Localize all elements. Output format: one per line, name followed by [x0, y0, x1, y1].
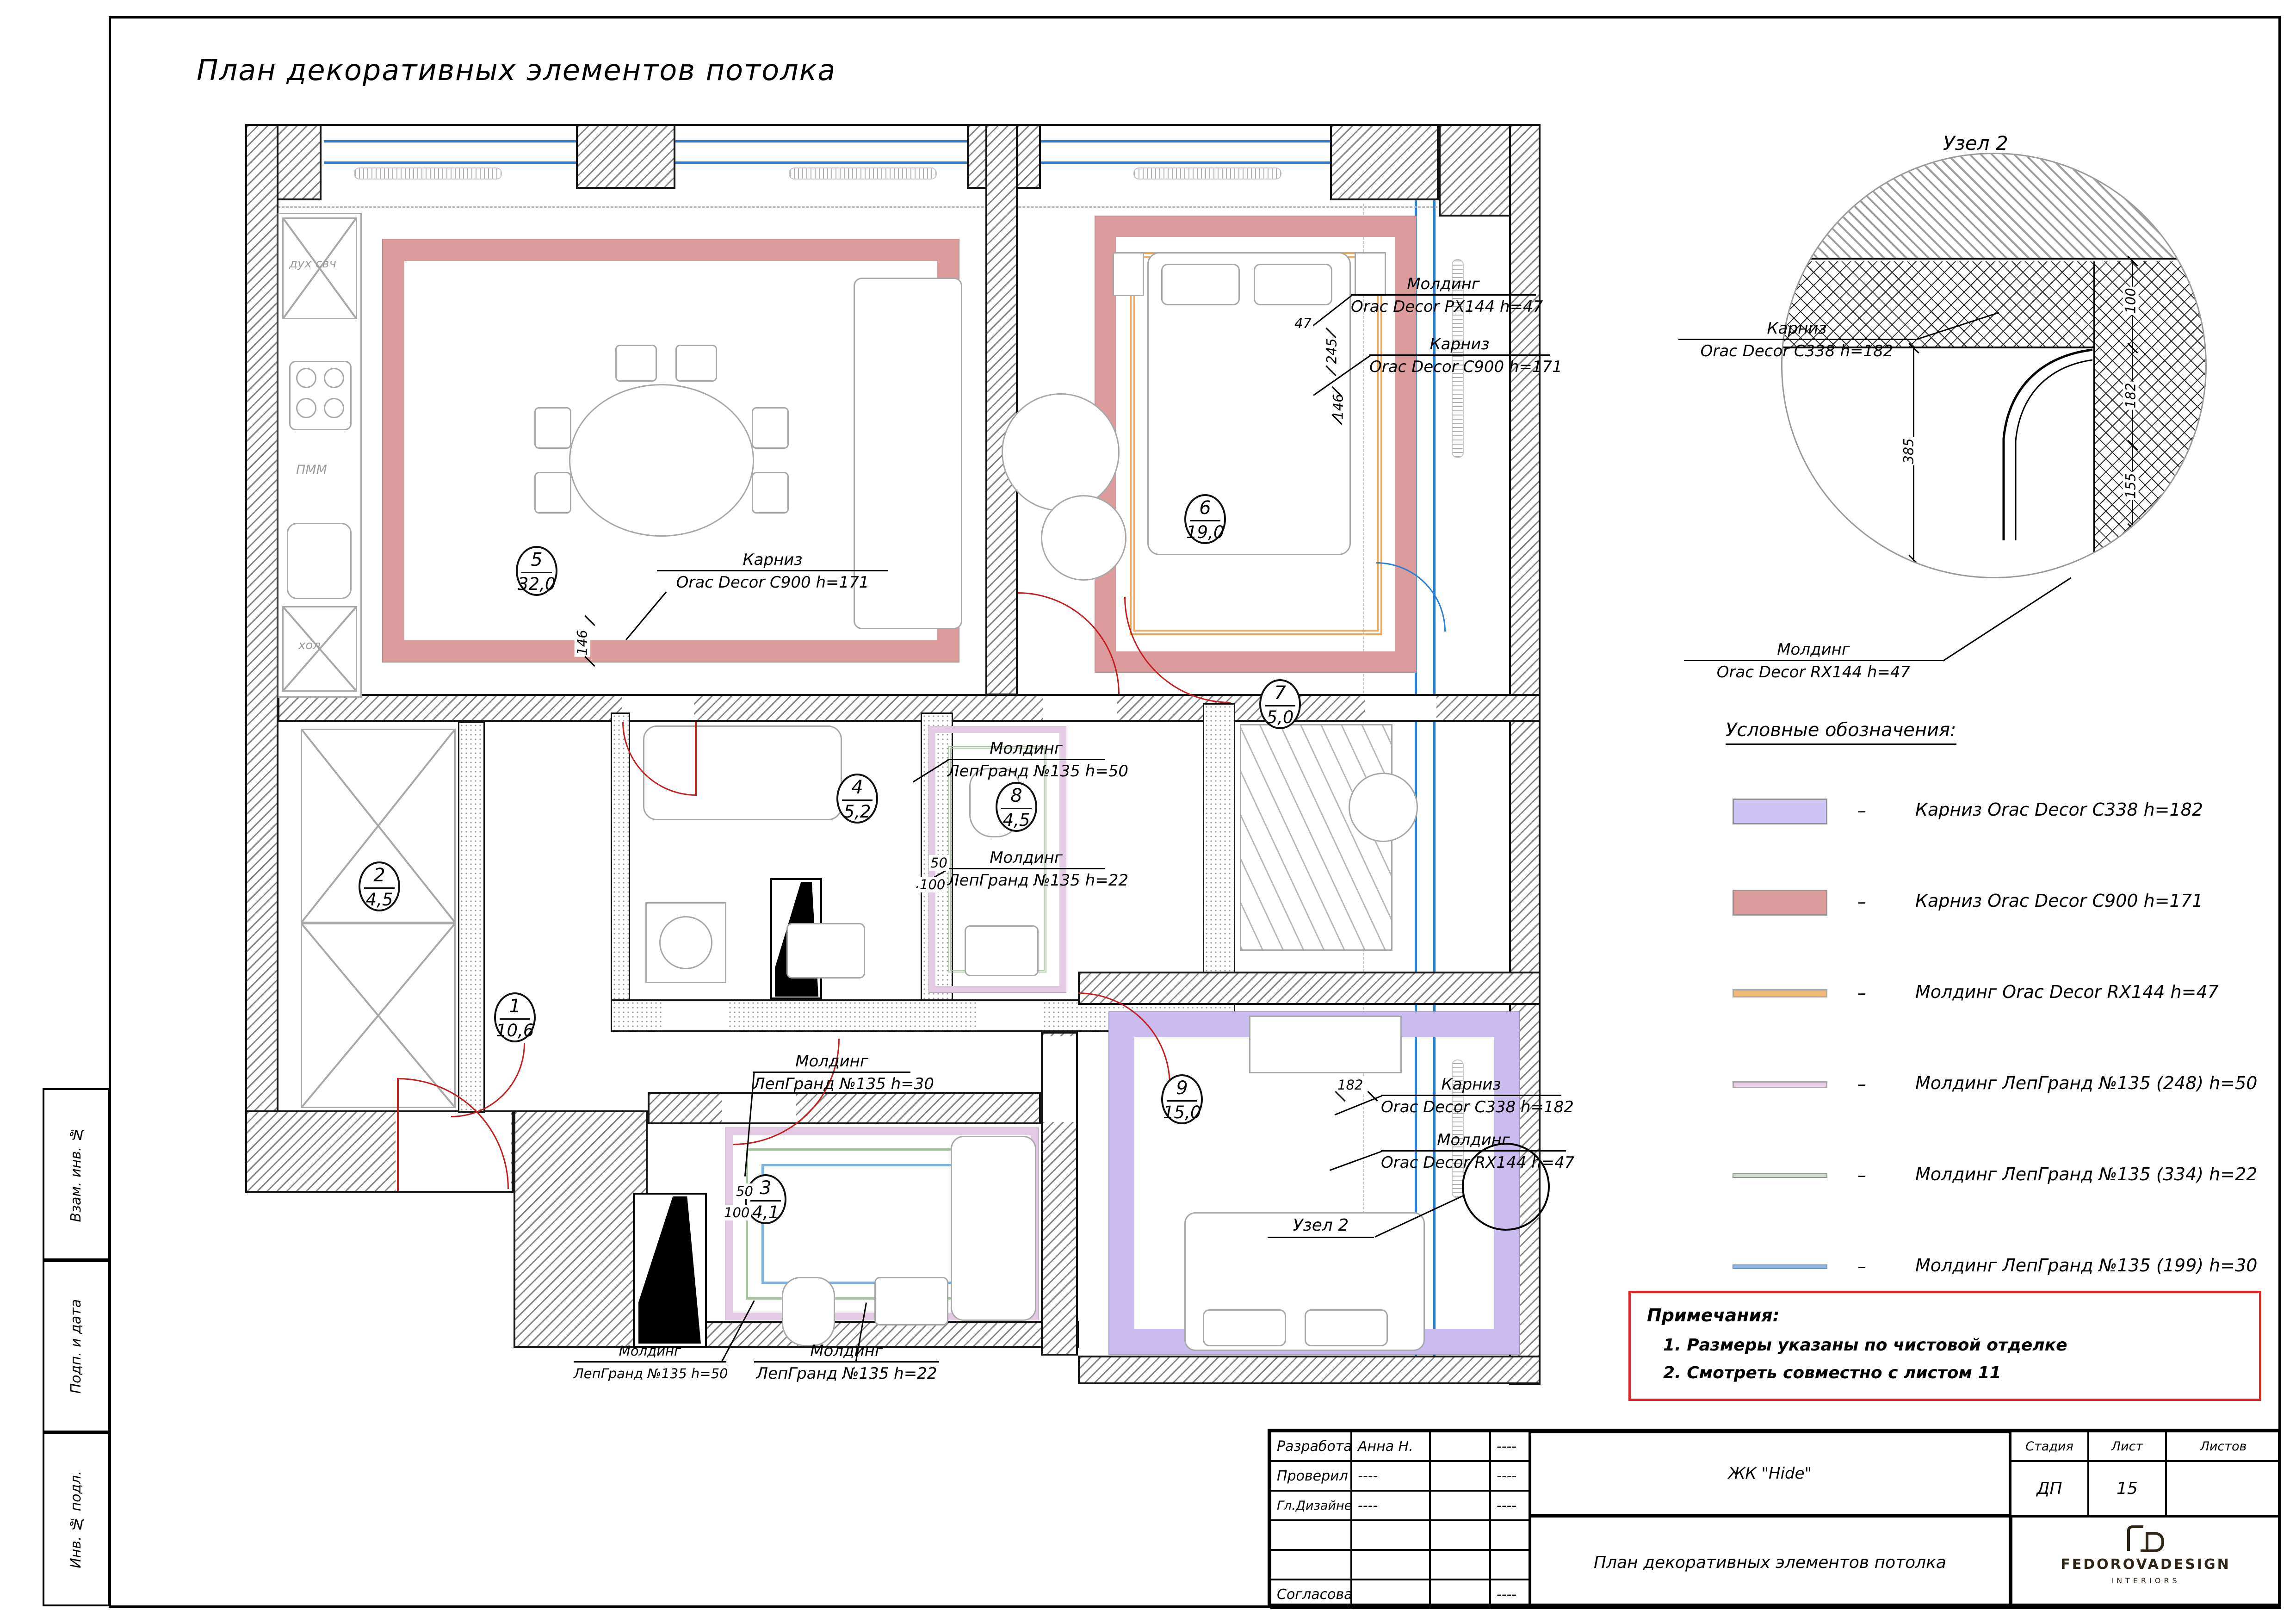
- tb-cell: Проверил: [1270, 1461, 1351, 1491]
- room-marker-9: 915,0: [1161, 1074, 1203, 1124]
- annotation-cornice-c900-top: Карниз Orac Decor C900 h=171: [1369, 334, 1550, 377]
- legend-swatch-c900: [1733, 890, 1827, 916]
- tb-cell: [1430, 1550, 1490, 1580]
- dim-50-room3: 50: [735, 1183, 755, 1199]
- pillow: [1203, 1309, 1286, 1346]
- vent-shaft-wedge: [638, 1196, 701, 1344]
- wall-crosshatch-column: [2093, 261, 2207, 578]
- vent-shaft: [633, 1193, 707, 1348]
- tb-logo-cell: FEDOROVADESIGN INTERIORS: [2011, 1516, 2281, 1609]
- legend-dash: –: [1857, 800, 1866, 821]
- dim-100-room8: 100: [918, 877, 947, 892]
- legend-label: Молдинг Orac Decor RX144 h=47: [1915, 982, 2219, 1002]
- node-dim-182: 182: [2123, 381, 2139, 409]
- tb-cell: [1430, 1580, 1490, 1609]
- node-detail-title: Узел 2: [1943, 132, 2008, 155]
- dim-50-room8: 50: [929, 855, 949, 871]
- tb-cell: ----: [1351, 1461, 1430, 1491]
- annotation-molding-h50-bottom: Молдинг ЛепГранд №135 h=50: [574, 1341, 726, 1384]
- legend-swatch-lg199: [1733, 1264, 1827, 1269]
- door-opening: [976, 1001, 1041, 1030]
- room-marker-7: 75,0: [1259, 679, 1301, 729]
- toilet: [782, 1277, 835, 1346]
- tb-sheets-label: Листов: [2166, 1431, 2281, 1461]
- door-opening: [1365, 696, 1436, 720]
- node-dim-385: 385: [1901, 437, 1917, 465]
- drawing-sheet: Взам. инв. № Подп. и дата Инв. № подл. П…: [0, 0, 2296, 1623]
- side-strip-label: Подп. и дата: [68, 1299, 84, 1394]
- annotation-cornice-c338-room9: Карниз Orac Decor C338 h=182: [1381, 1074, 1561, 1117]
- legend-title: Условные обозначения:: [1726, 719, 1956, 745]
- mirror-round: [1349, 773, 1418, 842]
- chair: [615, 345, 657, 382]
- tb-cell: [1351, 1520, 1430, 1550]
- chair: [534, 407, 571, 449]
- title-block: Разработал Анна Н. ---- Проверил ---- --…: [1268, 1429, 2281, 1606]
- tb-cell: [1430, 1520, 1490, 1550]
- dim-245-top: 245: [1324, 337, 1340, 365]
- tb-doc-title-cell: План декоративных элементов потолка: [1529, 1516, 2011, 1609]
- legend-dash: –: [1857, 1256, 1866, 1276]
- legend-swatch-lg248: [1733, 1081, 1827, 1088]
- legend-label: Карниз Orac Decor C900 h=171: [1915, 891, 2203, 911]
- side-strip-label: Инв. № подл.: [68, 1471, 84, 1568]
- chair: [752, 407, 789, 449]
- stove-burner: [296, 398, 316, 418]
- sink: [874, 1277, 948, 1326]
- legend-swatch-c338: [1733, 799, 1827, 824]
- legend-row: – Молдинг ЛепГранд №135 (248) h=50: [1733, 1069, 2265, 1102]
- tb-cell: [1490, 1550, 1529, 1580]
- partition-wall: [1203, 703, 1235, 1002]
- tb-cell: [1430, 1461, 1490, 1491]
- wall-segment: [1078, 1356, 1541, 1384]
- tb-cell: Согласовано: [1270, 1580, 1351, 1609]
- door-opening: [1043, 1036, 1076, 1122]
- cornice-profile: [1977, 346, 2097, 545]
- door-opening: [622, 696, 694, 720]
- node-dim-155: 155: [2123, 471, 2139, 500]
- node-dim-47: 47: [2120, 537, 2136, 557]
- legend-row: – Карниз Orac Decor C900 h=171: [1733, 887, 2265, 919]
- tb-cell: [1490, 1520, 1529, 1550]
- tb-stage-label: Стадия: [2011, 1431, 2088, 1461]
- tb-cell: [1351, 1580, 1430, 1609]
- tb-cell: ----: [1490, 1491, 1529, 1520]
- annotation-molding-h30-room3: Молдинг ЛепГранд №135 h=30: [753, 1051, 910, 1094]
- legend-row: – Карниз Orac Decor C338 h=182: [1733, 796, 2265, 828]
- room-marker-1: 110,6: [494, 992, 536, 1042]
- door-leaf: [695, 722, 697, 796]
- dim-47-top: 47: [1293, 316, 1313, 331]
- wall-segment: [648, 1092, 1041, 1124]
- tb-doc-title: План декоративных элементов потолка: [1594, 1553, 1946, 1572]
- annotation-molding-px144: Молдинг Orac Decor PX144 h=47: [1351, 274, 1536, 317]
- legend-row: – Молдинг Orac Decor RX144 h=47: [1733, 978, 2265, 1010]
- stove-burner: [324, 368, 344, 388]
- radiator-coil: [1133, 167, 1281, 180]
- coffee-table-round: [1002, 393, 1120, 511]
- door-opening: [662, 1001, 726, 1030]
- fd-logo-icon: [2125, 1524, 2166, 1555]
- bathtub: [951, 1136, 1036, 1321]
- dim-146-top: 146: [1331, 392, 1346, 421]
- dining-table: [569, 384, 754, 537]
- tb-cell: Анна Н.: [1351, 1431, 1430, 1461]
- room-marker-8: 84,5: [996, 782, 1037, 832]
- annotation-molding-h22-room8: Молдинг ЛепГранд №135 h=22: [947, 848, 1105, 891]
- tb-cell: ----: [1351, 1491, 1430, 1520]
- sink: [965, 925, 1039, 976]
- chair: [675, 345, 717, 382]
- tb-sheets-value: [2166, 1461, 2281, 1516]
- notes-item: 2. Смотреть совместно с листом 11: [1663, 1363, 2001, 1382]
- side-strip-cell: Взам. инв. №: [43, 1088, 110, 1260]
- notes-title: Примечания:: [1647, 1305, 1780, 1326]
- chair: [752, 472, 789, 514]
- kitchen-dishwasher-label: ПММ: [296, 463, 327, 477]
- ceiling-break-line: [278, 206, 1508, 208]
- annotation-molding-h22-bottom: Молдинг ЛепГранд №135 h=22: [754, 1341, 939, 1384]
- tb-logo-name: FEDOROVADESIGN: [2012, 1556, 2279, 1573]
- pillow: [1254, 264, 1332, 305]
- kitchen-fridge-label: хол: [298, 638, 321, 652]
- partition-wall: [611, 712, 630, 1002]
- node-ref-circle: [1462, 1143, 1550, 1231]
- legend-dash: –: [1857, 983, 1866, 1003]
- wall-segment: [245, 124, 278, 1193]
- stove-burner: [296, 368, 316, 388]
- legend-swatch-rx144: [1733, 989, 1827, 997]
- legend-label: Молдинг ЛепГранд №135 (334) h=22: [1915, 1164, 2257, 1184]
- side-strip-cell: Подп. и дата: [43, 1260, 110, 1432]
- room-marker-4: 45,2: [836, 774, 878, 824]
- page-title: План декоративных элементов потолка: [197, 53, 836, 87]
- chair: [534, 472, 571, 514]
- annotation-molding-h50-room8: Молдинг ЛепГранд №135 h=50: [947, 738, 1105, 781]
- nightstand: [1113, 252, 1144, 296]
- legend-label: Карниз Orac Decor C338 h=182: [1915, 799, 2203, 820]
- dim-100-room3: 100: [723, 1205, 751, 1220]
- legend-swatch-lg334: [1733, 1173, 1827, 1178]
- legend-label: Молдинг ЛепГранд №135 (248) h=50: [1915, 1073, 2257, 1093]
- tb-cell: [1351, 1550, 1430, 1580]
- tb-project-cell: ЖК "Hide": [1529, 1431, 2011, 1516]
- kitchen-sink: [287, 523, 352, 599]
- stove-burner: [324, 398, 344, 418]
- coffee-table-round: [1041, 495, 1126, 581]
- tb-cell: [1270, 1520, 1351, 1550]
- door-opening: [1043, 696, 1117, 720]
- tb-sheet-value: 15: [2088, 1461, 2166, 1516]
- tb-cell: ----: [1490, 1461, 1529, 1491]
- tb-cell: ----: [1490, 1580, 1529, 1609]
- radiator-coil: [789, 167, 937, 180]
- node-label-molding: Молдинг Orac Decor RX144 h=47: [1684, 639, 1943, 682]
- tb-logo-sub: INTERIORS: [2012, 1576, 2279, 1585]
- side-strip-label: Взам. инв. №: [68, 1126, 84, 1222]
- wall-segment: [278, 694, 1541, 722]
- wardrobe-box: [301, 923, 456, 1108]
- node-label-cornice: Карниз Orac Decor C338 h=182: [1678, 318, 1915, 361]
- side-strip-cell: Инв. № подл.: [43, 1432, 110, 1606]
- room-marker-2: 24,5: [359, 861, 400, 911]
- slab-hatch: [1782, 154, 2207, 260]
- tb-cell: Гл.Дизайнер: [1270, 1491, 1351, 1520]
- wardrobe: [1249, 1016, 1402, 1073]
- node-ref-label: Узел 2: [1268, 1216, 1374, 1238]
- room-marker-6: 619,0: [1184, 494, 1226, 544]
- tb-cell: ----: [1490, 1431, 1529, 1461]
- tb-stage-value: ДП: [2011, 1461, 2088, 1516]
- node-dim-100: 100: [2123, 286, 2139, 315]
- tb-project: ЖК "Hide": [1728, 1464, 1812, 1483]
- room-marker-5: 532,0: [516, 546, 557, 596]
- legend-dash: –: [1857, 1165, 1866, 1185]
- radiator-coil: [354, 167, 502, 180]
- tb-cell: [1430, 1491, 1490, 1520]
- legend-row: – Молдинг ЛепГранд №135 (199) h=30: [1733, 1251, 2265, 1284]
- pillow: [1305, 1309, 1388, 1346]
- annotation-cornice-c900-room5: Карниз Orac Decor C900 h=171: [657, 550, 888, 593]
- legend-dash: –: [1857, 1074, 1866, 1094]
- tb-cell: [1430, 1431, 1490, 1461]
- wall-segment: [576, 124, 675, 189]
- tb-cell: [1270, 1550, 1351, 1580]
- room-marker-3: 34,1: [745, 1174, 786, 1224]
- kitchen-oven-label: дух свч: [289, 257, 336, 271]
- tb-cell: Разработал: [1270, 1431, 1351, 1461]
- washing-machine-drum: [659, 916, 712, 969]
- wall-segment: [1330, 124, 1439, 200]
- wall-segment: [985, 124, 1018, 695]
- legend-label: Молдинг ЛепГранд №135 (199) h=30: [1915, 1255, 2257, 1276]
- curtain-track-line: [324, 161, 1448, 164]
- dim-182-room9: 182: [1336, 1077, 1364, 1093]
- sink: [786, 923, 865, 979]
- curtain-track-line: [324, 140, 1448, 142]
- legend-row: – Молдинг ЛепГранд №135 (334) h=22: [1733, 1160, 2265, 1193]
- wall-segment: [1078, 972, 1541, 1005]
- dim-146-room5: 146: [575, 628, 590, 657]
- notes-box: Примечания: 1. Размеры указаны по чистов…: [1628, 1291, 2261, 1401]
- node-detail-circle: 100 182 155 47 385: [1781, 153, 2207, 578]
- tb-sheet-label: Лист: [2088, 1431, 2166, 1461]
- notes-item: 1. Размеры указаны по чистовой отделке: [1663, 1336, 2067, 1355]
- wall-segment: [514, 1110, 648, 1348]
- legend-dash: –: [1857, 892, 1866, 912]
- door-leaf: [397, 1078, 399, 1191]
- pillow: [1161, 264, 1240, 305]
